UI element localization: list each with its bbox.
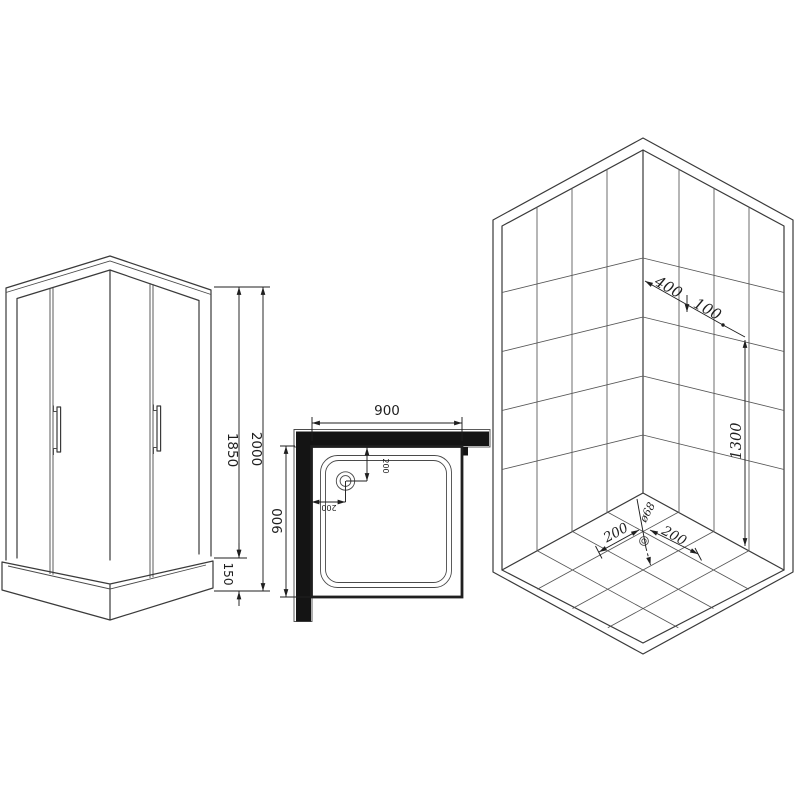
- dim-iso-drain-dia: ø68: [636, 500, 658, 525]
- dim-front-tray: 150: [221, 563, 235, 586]
- dim-front-total: 2000: [248, 432, 264, 466]
- dim-top-width: 900: [374, 403, 400, 419]
- front-cabin-inner-frame: [17, 270, 199, 558]
- front-tray-base: [2, 561, 213, 620]
- dim-front-glass: 1850: [224, 433, 240, 467]
- iso-fixture-dimensions: 400 100 1300: [645, 272, 745, 546]
- dim-iso-fixture-height: 1300: [729, 423, 745, 460]
- technical-drawing-page: 1850 2000 150 200 200 900: [0, 0, 800, 800]
- isometric-view: ø68 200 200 400 100 1300: [493, 138, 793, 654]
- dim-top-drain-v: 200: [381, 458, 390, 473]
- dim-top-drain-h: 200: [321, 503, 336, 512]
- front-dimensions: 1850 2000 150: [214, 287, 270, 606]
- front-cabin-frame-parallel: [6, 261, 211, 295]
- front-cabin-outer-frame: [6, 256, 211, 560]
- drawing-canvas: 1850 2000 150 200 200 900: [0, 0, 800, 800]
- dim-top-depth: 900: [270, 508, 286, 534]
- front-left-door-edge: [50, 288, 53, 575]
- dim-iso-fixture-gap: 100: [691, 294, 725, 324]
- top-view: 200 200 900 900: [270, 403, 490, 622]
- front-right-door-edge: [150, 283, 153, 578]
- front-view: 1850 2000 150: [2, 256, 270, 620]
- right-door-handle: [154, 405, 161, 455]
- dim-iso-floor-right: 200: [658, 522, 690, 549]
- top-wall-bar-top: [296, 432, 489, 447]
- dim-iso-fixture-offset: 400: [651, 272, 686, 302]
- left-door-handle: [54, 406, 61, 456]
- top-wall-bar-left: [296, 432, 311, 622]
